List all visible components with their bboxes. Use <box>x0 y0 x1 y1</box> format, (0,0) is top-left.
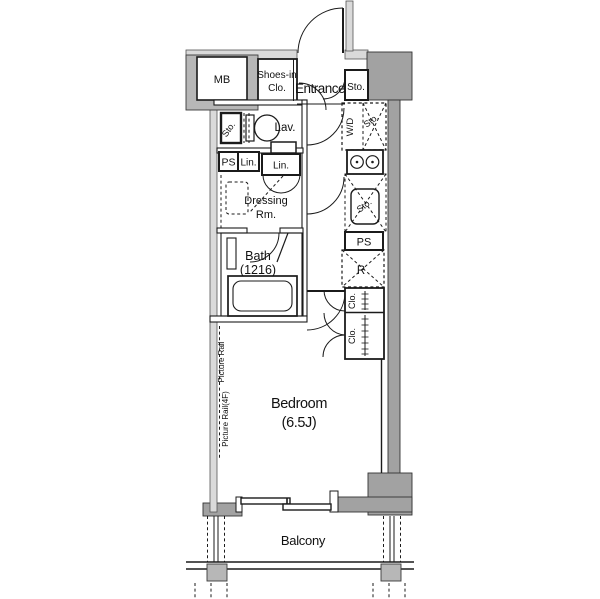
mb-label: MB <box>214 74 231 86</box>
shoes-in-closet-label-1: Shoes-in <box>257 70 296 81</box>
shoes-in-closet-label-2: Clo. <box>268 83 286 94</box>
pipe-space-left-label: PS <box>221 157 235 169</box>
washbasin <box>271 142 296 153</box>
bottom-wall-right <box>332 497 412 512</box>
entrance-door-swing-arc <box>298 8 343 53</box>
bedroom-label-1: Bedroom <box>271 396 327 412</box>
bath-label-2: (1216) <box>240 263 276 277</box>
dressing-door-arc <box>307 177 344 214</box>
burner-left-dot <box>356 161 359 164</box>
stove <box>347 150 383 174</box>
window-panel-2 <box>283 504 331 510</box>
closet-1-label: Clo. <box>347 293 357 309</box>
refrigerator-label: R <box>357 265 365 277</box>
left-exterior-wall <box>210 103 217 512</box>
lavatory-label: Lav. <box>275 122 296 134</box>
hall-doors <box>307 108 345 330</box>
kitchen-storage-label: Sto. <box>355 197 374 215</box>
toilet-tank <box>246 115 254 141</box>
dressing-south-wall-left <box>217 228 247 233</box>
closet-door-arc-3 <box>323 335 345 357</box>
floor-plan: MB Shoes-in Clo. Entrance Sto. W/D Sto. … <box>0 0 600 599</box>
closet-door-arc-2 <box>324 313 345 335</box>
corridor-wall-above-door <box>346 1 353 51</box>
pipe-space-right-label: PS <box>357 237 372 249</box>
entrance-label: Entrance <box>295 81 345 96</box>
bedroom-label-2: (6.5J) <box>282 415 317 431</box>
picture-rail-upper-label: Picture Rail <box>217 341 226 382</box>
window-panel-1 <box>241 498 290 504</box>
linen-bifold-arc-left <box>263 175 281 193</box>
linen-bifold-arc-right <box>281 175 300 193</box>
bathtub-inner <box>233 281 292 311</box>
picture-rail-lower-label: Picture Rail(4F) <box>221 391 230 447</box>
bedroom-door-arc <box>307 292 345 330</box>
washer-storage-label: Sto. <box>362 112 381 130</box>
railing-post-left <box>207 564 227 581</box>
boundary-ticks-bottom <box>195 583 405 598</box>
linen-1-label: Lin. <box>240 158 256 169</box>
floor-plan-drawing: MB Shoes-in Clo. Entrance Sto. W/D Sto. … <box>0 0 600 599</box>
bath-south-wall <box>210 316 307 322</box>
lavatory-door-arc <box>307 108 344 145</box>
dressing-label-1: Dressing <box>244 195 287 207</box>
dressing-label-2: Rm. <box>256 209 276 221</box>
pillar-top-right <box>367 52 412 100</box>
right-exterior-wall <box>388 100 400 475</box>
washer-dryer-label: W/D <box>345 118 356 137</box>
linen-2-label: Lin. <box>273 161 289 172</box>
bath-counter <box>227 238 236 269</box>
balcony-label: Balcony <box>281 533 326 548</box>
railing-post-right <box>381 564 401 581</box>
dressing-south-wall-right <box>280 228 303 233</box>
closet-2-label: Clo. <box>347 328 357 344</box>
balcony-structure <box>186 516 414 598</box>
bath-label-1: Bath <box>245 249 271 263</box>
bedroom-window <box>220 326 339 512</box>
entrance-storage-label: Sto. <box>347 82 365 93</box>
burner-right-dot <box>371 161 374 164</box>
